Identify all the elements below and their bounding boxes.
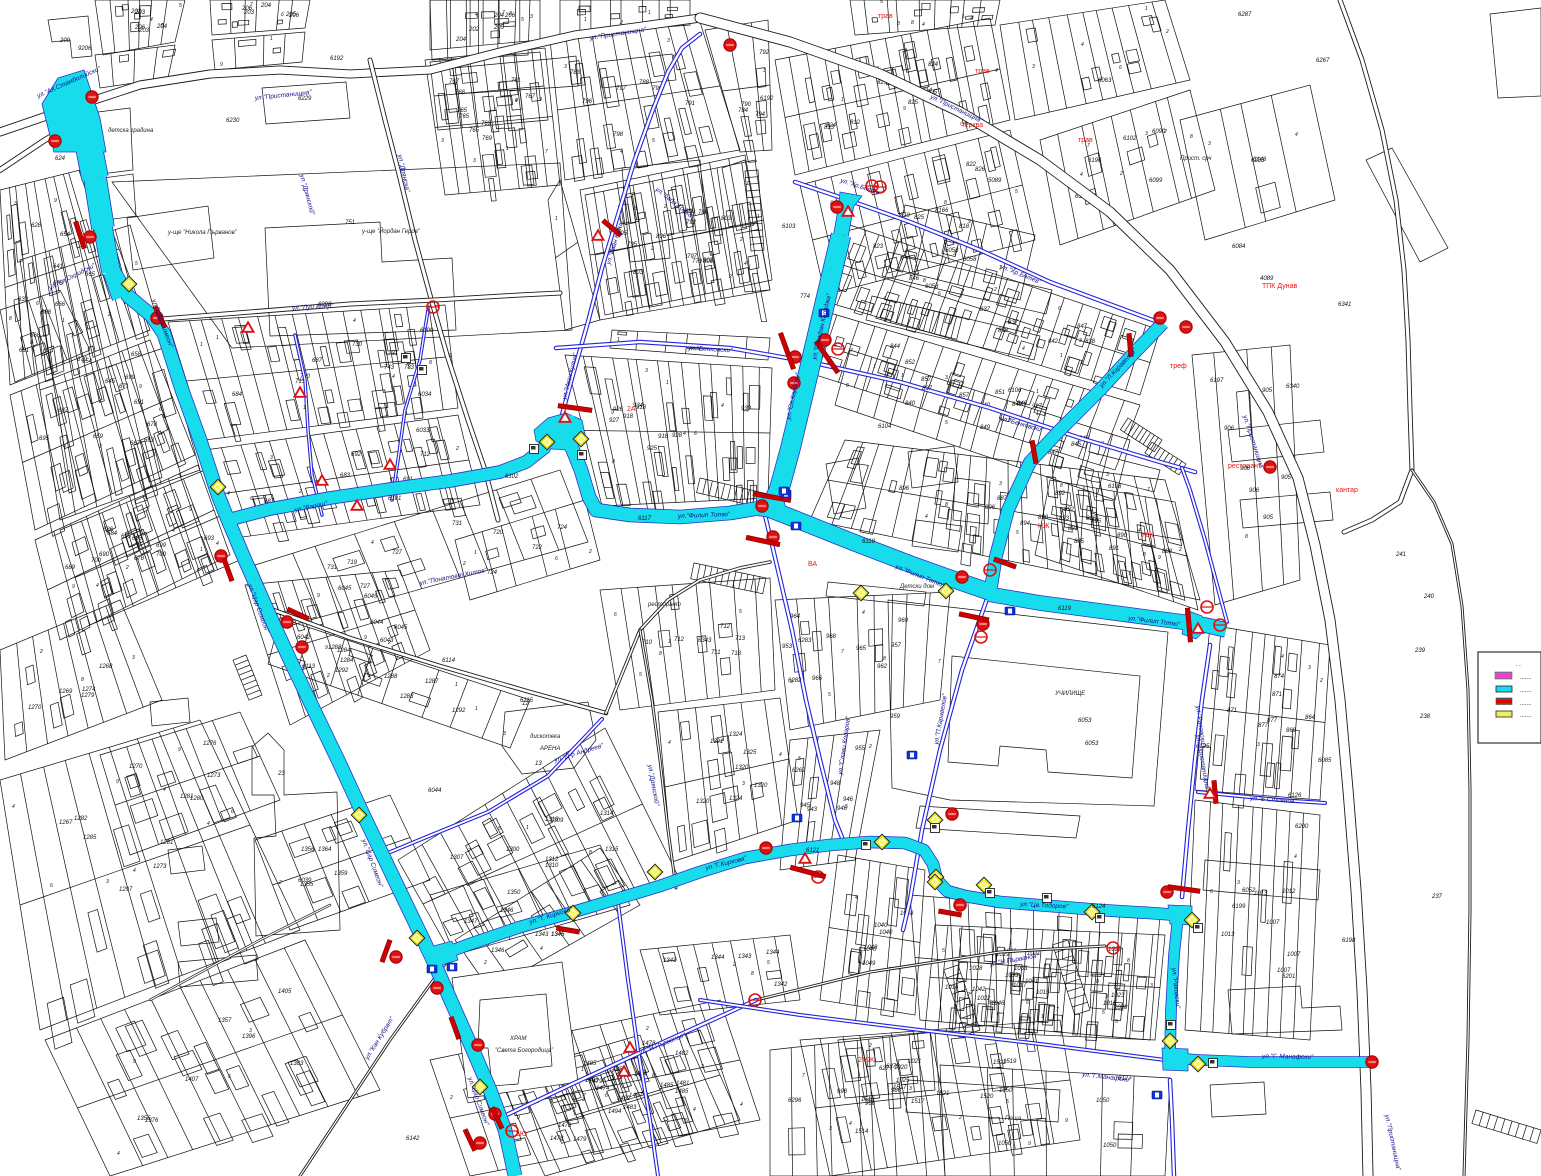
svg-text:1: 1 [1145,6,1148,12]
svg-text:ул.”Г. Манафски”: ул.”Г. Манафски” [1261,1053,1314,1061]
svg-text:2: 2 [326,673,330,679]
svg-text:1383: 1383 [290,1061,304,1067]
svg-text:. .: . . [1516,662,1521,668]
svg-text:1279: 1279 [81,693,95,699]
svg-text:1343: 1343 [738,954,752,960]
svg-text:3: 3 [530,14,533,20]
svg-text:849: 849 [980,425,991,431]
svg-text:925: 925 [647,446,658,452]
svg-text:1309: 1309 [550,818,564,824]
svg-text:700: 700 [91,558,102,564]
svg-text:1314: 1314 [600,811,614,817]
svg-text:1270: 1270 [129,764,143,770]
svg-text:у-ще ”Никола Първанов”: у-ще ”Никола Първанов” [167,230,238,236]
svg-text:846: 846 [909,276,920,282]
svg-text:1276: 1276 [203,741,217,747]
svg-text:6121: 6121 [806,848,819,854]
svg-text:784: 784 [738,108,749,114]
svg-text:926: 926 [613,407,624,413]
svg-text:6099: 6099 [1149,178,1163,184]
svg-text:4: 4 [925,514,928,520]
svg-text:трав: трав [1078,137,1093,144]
svg-text:1342: 1342 [774,982,788,988]
svg-text:1284: 1284 [337,648,351,654]
svg-text:1041: 1041 [1025,979,1038,985]
svg-text:1321: 1321 [710,739,723,745]
svg-text:6117: 6117 [638,516,652,522]
svg-text:891: 891 [1109,546,1119,552]
svg-text:1297: 1297 [119,887,133,893]
svg-text:1282: 1282 [74,816,88,822]
svg-text:6127: 6127 [1118,1076,1132,1082]
svg-text:1396: 1396 [242,1034,256,1040]
svg-text:6341: 6341 [1338,302,1351,308]
svg-text:4: 4 [779,752,782,758]
svg-text:8: 8 [1127,958,1130,964]
svg-text:1284: 1284 [340,658,354,664]
svg-text:4: 4 [150,17,153,23]
svg-text:837: 837 [1008,320,1019,326]
svg-text:6197: 6197 [1210,378,1224,384]
svg-text:204: 204 [260,3,272,9]
svg-text:3: 3 [634,206,637,212]
svg-text:4: 4 [12,804,15,810]
svg-text:825: 825 [914,215,925,221]
svg-text:ТПК Дунав: ТПК Дунав [1262,283,1297,290]
svg-text:6102: 6102 [505,474,519,480]
svg-text:2: 2 [739,237,743,243]
svg-text:.......: ....... [1520,713,1532,719]
svg-text:7: 7 [545,149,548,155]
svg-text:8: 8 [9,316,12,322]
svg-text:1: 1 [455,682,458,688]
svg-text:668: 668 [41,310,52,316]
svg-text:6042: 6042 [297,635,311,641]
svg-text:3: 3 [909,1086,912,1092]
svg-text:825: 825 [908,100,919,106]
svg-text:892: 892 [1064,507,1075,513]
svg-text:8: 8 [429,360,432,366]
svg-text:1: 1 [668,639,671,645]
svg-text:1007: 1007 [1266,920,1280,926]
svg-text:953: 953 [782,644,793,650]
svg-text:1: 1 [841,97,844,103]
svg-text:3: 3 [1308,665,1311,671]
svg-text:6192: 6192 [760,96,774,102]
svg-text:6343: 6343 [698,638,712,644]
svg-text:927: 927 [1032,404,1043,410]
svg-text:6199: 6199 [1232,904,1246,910]
svg-text:840: 840 [905,401,916,407]
svg-text:6044: 6044 [428,788,442,794]
svg-text:205: 205 [493,25,505,31]
svg-text:1324: 1324 [729,796,743,802]
svg-text:2А: 2А [627,406,636,413]
svg-text:8: 8 [652,1073,655,1079]
svg-text:792: 792 [759,50,770,56]
svg-text:6: 6 [159,407,162,413]
svg-text:1: 1 [270,36,273,42]
svg-text:4: 4 [849,1121,852,1127]
svg-text:6196: 6196 [1088,158,1102,164]
svg-text:6: 6 [555,556,558,562]
svg-text:798: 798 [613,132,624,138]
svg-text:842: 842 [1048,339,1059,345]
svg-text:6100: 6100 [420,328,434,334]
svg-text:1283: 1283 [400,694,414,700]
svg-text:4: 4 [721,403,724,409]
svg-text:204: 204 [455,37,467,43]
svg-text:6: 6 [250,496,253,502]
svg-text:4: 4 [371,540,374,546]
svg-text:3: 3 [763,68,766,74]
svg-text:6108: 6108 [1108,484,1122,490]
svg-text:5089: 5089 [988,178,1002,184]
svg-text:2: 2 [455,446,459,452]
svg-text:5: 5 [767,960,770,966]
svg-text:794: 794 [755,112,766,118]
svg-text:1049: 1049 [862,961,876,967]
svg-text:6: 6 [1026,1000,1029,1006]
svg-text:1012: 1012 [1282,889,1296,895]
svg-text:3: 3 [441,138,444,144]
svg-text:6053: 6053 [1078,718,1092,724]
svg-text:905: 905 [1262,388,1273,394]
svg-text:2: 2 [278,880,282,886]
svg-text:3: 3 [1079,338,1082,344]
svg-text:2: 2 [449,1095,453,1101]
svg-text:4: 4 [163,787,166,793]
svg-text:671: 671 [119,384,129,390]
svg-text:9: 9 [133,1059,136,1065]
svg-text:1013: 1013 [1254,891,1268,897]
svg-text:4: 4 [1138,528,1141,534]
svg-text:4: 4 [172,528,175,534]
svg-text:1050: 1050 [998,1141,1012,1147]
svg-text:8166: 8166 [935,208,949,214]
svg-text:765: 765 [457,108,468,114]
svg-text:769: 769 [482,136,493,142]
svg-text:дискотека: дискотека [530,734,561,740]
svg-text:711: 711 [711,650,721,656]
svg-text:818: 818 [959,224,970,230]
svg-text:4: 4 [117,1151,120,1157]
svg-text:1: 1 [216,335,219,341]
svg-text:718: 718 [731,651,742,657]
svg-text:1347: 1347 [464,919,478,925]
svg-text:6058: 6058 [945,248,959,254]
svg-text:5: 5 [639,672,642,678]
svg-text:6: 6 [281,12,284,18]
svg-text:890: 890 [1117,533,1128,539]
svg-text:6340: 6340 [1286,384,1300,390]
svg-text:6200: 6200 [1295,824,1309,830]
svg-text:6103: 6103 [782,224,796,230]
svg-text:2: 2 [1319,678,1323,684]
svg-text:678: 678 [147,422,158,428]
svg-text:905: 905 [1281,475,1292,481]
svg-text:1356: 1356 [301,847,315,853]
svg-text:8: 8 [1060,483,1063,489]
svg-text:896: 896 [985,505,996,511]
svg-text:241: 241 [1395,552,1406,558]
svg-text:1288: 1288 [384,674,398,680]
svg-text:6282: 6282 [788,678,802,684]
svg-text:9: 9 [903,106,906,112]
svg-text:1050: 1050 [999,1088,1013,1094]
svg-text:3: 3 [667,38,670,44]
svg-text:8: 8 [1143,552,1146,558]
svg-text:3: 3 [106,879,109,885]
svg-text:3: 3 [564,64,567,70]
svg-text:6: 6 [694,431,697,437]
svg-text:ХРАМ: ХРАМ [509,1036,527,1042]
svg-text:5Ю: 5Ю [516,1131,527,1138]
svg-text:5: 5 [521,17,524,23]
svg-text:2: 2 [39,649,43,655]
svg-text:9: 9 [72,584,75,590]
svg-text:2: 2 [728,274,732,280]
svg-text:5: 5 [945,420,948,426]
svg-text:6085: 6085 [1318,758,1332,764]
svg-text:4: 4 [668,740,671,746]
svg-text:5: 5 [498,826,501,832]
svg-text:4: 4 [133,868,136,874]
svg-text:239: 239 [1414,648,1426,654]
svg-text:1345: 1345 [551,932,565,938]
svg-text:1050: 1050 [1096,1098,1110,1104]
svg-text:724: 724 [557,525,568,531]
svg-text:790: 790 [741,102,752,108]
svg-text:6198: 6198 [1342,938,1356,944]
svg-text:5: 5 [828,692,831,698]
svg-text:1040: 1040 [874,923,888,929]
svg-text:1023: 1023 [1111,993,1125,999]
svg-text:203: 203 [134,10,146,16]
svg-text:у-ще ”Йордан Геров”: у-ще ”Йордан Геров” [361,227,421,235]
svg-text:3: 3 [473,158,476,164]
svg-text:1494: 1494 [608,1109,622,1115]
svg-text:6045: 6045 [394,625,408,631]
svg-text:6201: 6201 [1282,974,1295,980]
svg-text:1: 1 [873,364,876,370]
svg-text:5: 5 [1006,1099,1009,1105]
svg-text:893: 893 [1068,526,1079,532]
svg-text:4: 4 [922,22,925,28]
svg-text:ВА: ВА [808,561,817,568]
svg-text:детска градина: детска градина [108,128,154,134]
svg-text:3: 3 [132,655,135,661]
svg-text:871: 871 [1272,692,1282,698]
svg-text:4: 4 [995,68,998,74]
svg-text:797: 797 [616,86,627,92]
svg-text:964: 964 [790,614,801,620]
svg-text:6277: 6277 [879,1066,893,1072]
svg-text:1292: 1292 [452,708,466,714]
svg-text:1307: 1307 [450,855,464,861]
svg-text:7: 7 [841,649,844,655]
svg-text:3: 3 [742,781,745,787]
svg-text:957: 957 [891,643,902,649]
svg-text:641: 641 [53,264,63,270]
svg-text:1514: 1514 [855,1129,869,1135]
svg-text:6039: 6039 [298,878,312,884]
svg-text:”Света Богородица”: ”Света Богородица” [495,1048,554,1054]
svg-text:894: 894 [1020,521,1031,527]
svg-text:5: 5 [798,756,801,762]
svg-text:645: 645 [105,379,116,385]
svg-text:1357: 1357 [218,1018,232,1024]
svg-text:6: 6 [494,107,497,113]
svg-text:9: 9 [178,747,181,753]
svg-text:8: 8 [846,383,849,389]
svg-text:905: 905 [1263,515,1274,521]
svg-text:8: 8 [944,200,947,206]
svg-text:трав: трав [878,13,893,20]
svg-text:5: 5 [1115,1019,1118,1025]
svg-text:3: 3 [897,21,900,27]
svg-text:1355: 1355 [137,1116,151,1122]
svg-text:1274: 1274 [82,687,96,693]
svg-text:966: 966 [812,676,823,682]
svg-text:946: 946 [837,806,848,812]
svg-text:6: 6 [938,291,941,297]
svg-text:6114: 6114 [442,658,456,664]
svg-text:845: 845 [1071,442,1082,448]
svg-text:2: 2 [1119,171,1123,177]
svg-text:4: 4 [540,946,543,952]
svg-text:4: 4 [740,1102,743,1108]
svg-text:906: 906 [1224,426,1235,432]
svg-text:826: 826 [975,167,986,173]
svg-text:4: 4 [855,895,858,901]
svg-text:6283: 6283 [798,638,812,644]
svg-text:959: 959 [890,714,901,720]
svg-text:1520: 1520 [980,1094,994,1100]
svg-text:712: 712 [674,637,685,643]
svg-text:3: 3 [1150,983,1153,989]
svg-text:670: 670 [77,357,88,363]
svg-text:6098: 6098 [318,302,332,308]
svg-text:3: 3 [582,1097,585,1103]
svg-text:23: 23 [277,771,285,777]
svg-text:6: 6 [605,1093,608,1099]
svg-text:1343: 1343 [535,932,549,938]
svg-text:1479: 1479 [589,1079,603,1085]
svg-text:5: 5 [1016,530,1019,536]
svg-text:803: 803 [633,270,644,276]
svg-text:2: 2 [1165,29,1169,35]
svg-text:4: 4 [1081,42,1084,48]
svg-text:654: 654 [60,232,71,238]
svg-text:918: 918 [658,434,669,440]
svg-text:6: 6 [228,1074,231,1080]
svg-text:1324: 1324 [729,732,743,738]
svg-text:5: 5 [135,261,138,267]
svg-text:727: 727 [392,550,403,556]
svg-text:5: 5 [942,948,945,954]
svg-text:Поща: Поща [1005,1116,1022,1122]
svg-text:6084: 6084 [1232,244,1246,250]
svg-text:686: 686 [132,536,143,542]
svg-text:6267: 6267 [1316,58,1330,64]
svg-text:844: 844 [890,344,901,350]
svg-text:965: 965 [856,646,867,652]
svg-text:1: 1 [901,373,904,379]
svg-text:Детски дом: Детски дом [899,584,934,590]
svg-text:824: 824 [928,62,939,68]
svg-text:888: 888 [1162,549,1173,555]
svg-text:948: 948 [830,781,841,787]
svg-text:927: 927 [609,418,620,424]
svg-text:837: 837 [980,307,991,313]
svg-text:1350: 1350 [507,890,521,896]
svg-text:8: 8 [883,656,886,662]
svg-text:684: 684 [232,392,243,398]
svg-text:2: 2 [993,287,997,293]
svg-text:2: 2 [700,1064,704,1070]
svg-text:1013: 1013 [1221,932,1235,938]
svg-text:813: 813 [824,125,835,131]
svg-text:2: 2 [868,1043,872,1049]
svg-text:7: 7 [802,1073,805,1079]
svg-text:2МЖ: 2МЖ [858,1057,875,1064]
svg-text:6126: 6126 [1288,793,1302,799]
svg-text:869: 869 [1286,728,1297,734]
svg-text:1346: 1346 [500,908,514,914]
svg-text:4: 4 [1294,854,1297,860]
svg-text:895: 895 [1091,519,1102,525]
svg-text:200: 200 [59,38,71,44]
svg-text:659: 659 [93,434,104,440]
svg-text:731: 731 [327,565,337,571]
svg-text:1485: 1485 [675,1089,689,1095]
svg-text:4: 4 [620,149,623,155]
svg-text:9: 9 [116,779,119,785]
svg-text:1344: 1344 [766,950,780,956]
svg-text:1273: 1273 [153,864,167,870]
svg-text:1320: 1320 [754,783,768,789]
svg-text:851: 851 [995,390,1005,396]
svg-text:6058: 6058 [925,284,939,290]
svg-text:6: 6 [1058,306,1061,312]
svg-text:6033: 6033 [416,428,430,434]
svg-text:2: 2 [645,1026,649,1032]
svg-text:852: 852 [905,360,916,366]
svg-text:трав: трав [975,68,990,75]
svg-text:1: 1 [1129,571,1132,577]
svg-text:3: 3 [14,201,17,207]
svg-text:9206: 9206 [78,46,92,52]
svg-text:3: 3 [1145,131,1148,137]
svg-text:874: 874 [1274,674,1285,680]
svg-text:774: 774 [800,294,811,300]
svg-text:9: 9 [539,97,542,103]
svg-text:837: 837 [922,386,933,392]
svg-text:731: 731 [388,351,398,357]
svg-text:838: 838 [998,328,1009,334]
svg-text:687: 687 [58,408,69,414]
svg-text:4: 4 [353,318,356,324]
svg-text:УЧИЛИЩЕ: УЧИЛИЩЕ [1054,691,1086,697]
svg-text:4: 4 [1022,346,1025,352]
svg-text:4: 4 [227,491,230,497]
svg-text:1267: 1267 [59,820,73,826]
svg-text:1: 1 [200,342,203,348]
svg-text:766: 766 [455,90,466,96]
svg-text:6125: 6125 [1196,744,1210,750]
svg-text:1270: 1270 [28,705,42,711]
